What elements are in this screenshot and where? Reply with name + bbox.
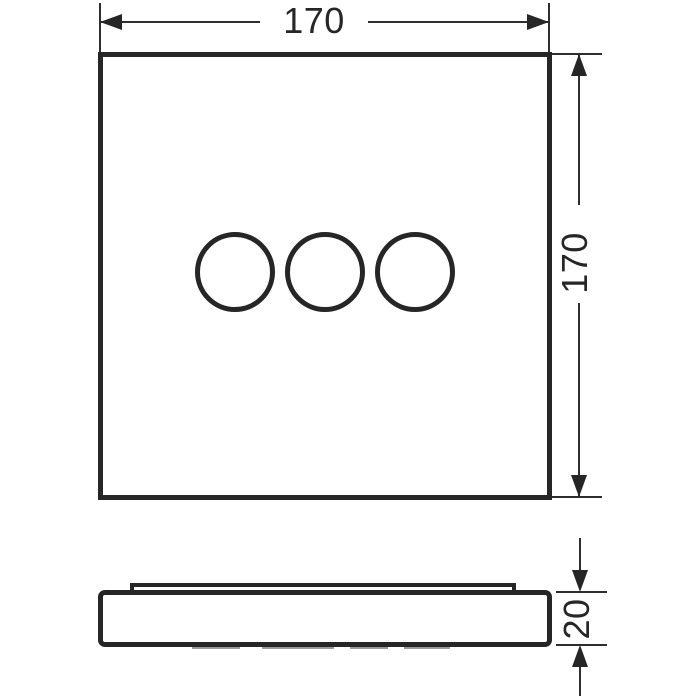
side-view-back-detail-3: [350, 647, 388, 649]
depth-dim-leader-bottom: [579, 667, 581, 696]
control-circle-1: [195, 232, 275, 312]
height-dim-line-bottom: [578, 303, 580, 496]
side-view-profile: [98, 590, 552, 647]
side-view-back-detail-1: [192, 647, 240, 649]
side-view-lip-step-right: [512, 583, 516, 593]
height-dim-label: 170: [557, 232, 593, 294]
width-dim-arrowhead-right: [527, 14, 549, 30]
control-circle-3: [375, 232, 455, 312]
control-circle-2: [285, 232, 365, 312]
width-dim-label: 170: [283, 3, 345, 39]
depth-dim-arrowhead-bottom: [572, 645, 588, 667]
width-dim-line-right: [368, 21, 549, 23]
depth-dim-arrowhead-top: [572, 570, 588, 592]
side-view-back-detail-4: [404, 647, 450, 649]
depth-dim-label: 20: [559, 598, 595, 639]
width-dim-arrowhead-left: [100, 14, 122, 30]
height-dim-arrowhead-top: [571, 54, 587, 76]
height-dim-arrowhead-bottom: [571, 475, 587, 497]
side-view-lip-step-left: [130, 583, 134, 593]
side-view-top-lip: [130, 583, 516, 587]
height-dim-line-top: [578, 55, 580, 205]
dimension-drawing: 170 170 20: [0, 0, 700, 700]
depth-dim-leader-top: [579, 538, 581, 571]
width-dim-line-left: [100, 21, 260, 23]
side-view-back-detail-2: [262, 647, 334, 649]
